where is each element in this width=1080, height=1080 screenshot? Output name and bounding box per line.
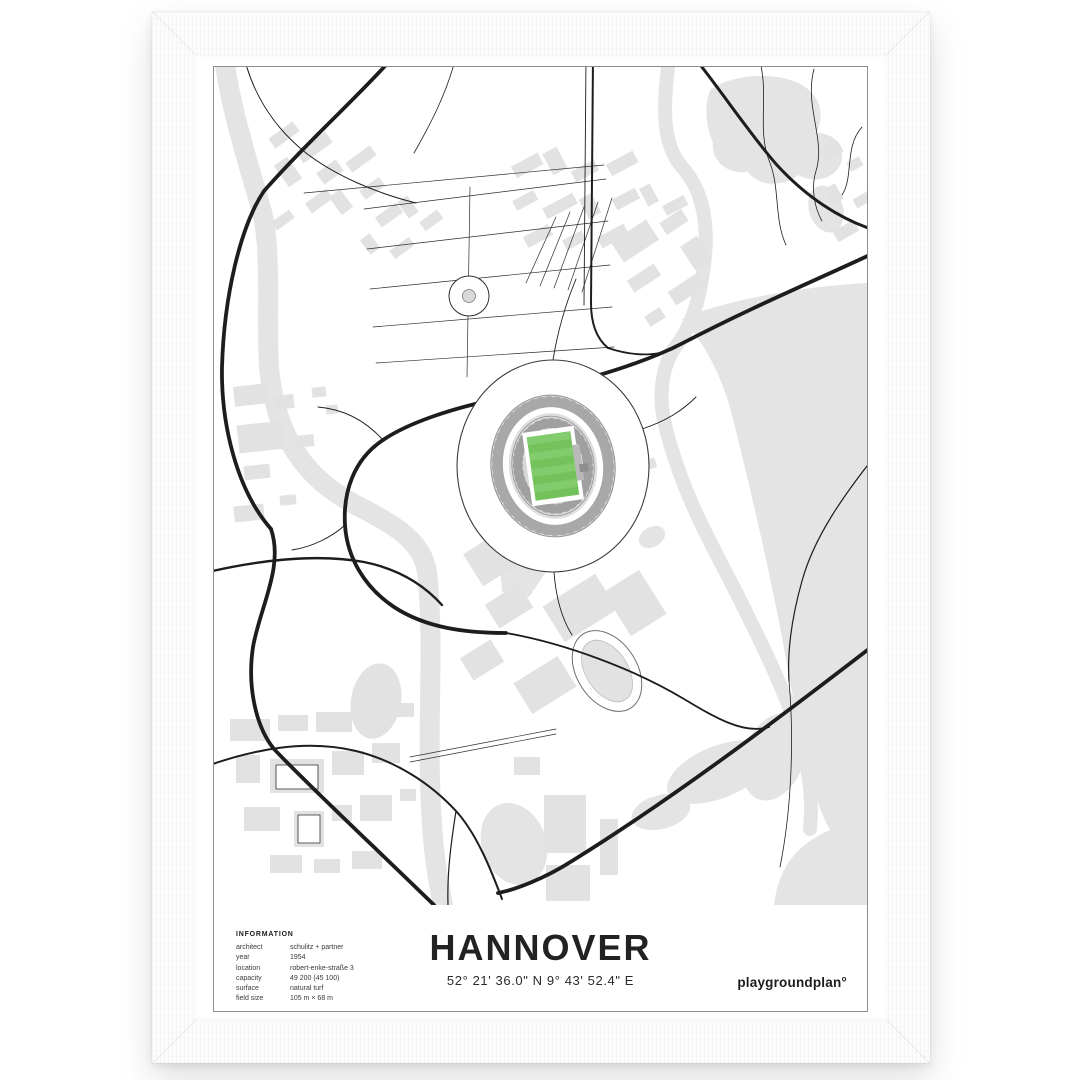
stadium-icon xyxy=(457,360,649,572)
info-row-field-size: field size 105 m × 68 m xyxy=(236,994,354,1004)
brand-logo-text: playgroundplan° xyxy=(737,975,847,990)
frame-miter-joint xyxy=(152,11,196,55)
hannover-stadium-map xyxy=(214,67,867,905)
courtyard-outlines xyxy=(276,765,320,843)
city-title: HANNOVER xyxy=(214,929,867,967)
info-value: 105 m × 68 m xyxy=(290,994,333,1004)
frame-miter-joint xyxy=(152,1020,196,1064)
poster-paper: INFORMATION architect schulitz + partner… xyxy=(195,55,887,1020)
white-wooden-frame: INFORMATION architect schulitz + partner… xyxy=(152,12,930,1063)
roundabout xyxy=(449,276,489,316)
info-label: field size xyxy=(236,994,290,1004)
poster-footer: INFORMATION architect schulitz + partner… xyxy=(214,905,867,1011)
frame-miter-joint xyxy=(886,1020,930,1064)
map-illustration xyxy=(214,67,867,905)
athletic-tracks xyxy=(345,618,656,743)
framed-poster-product-photo: INFORMATION architect schulitz + partner… xyxy=(0,0,1080,1080)
poster-printed-area: INFORMATION architect schulitz + partner… xyxy=(213,66,868,1012)
frame-miter-joint xyxy=(886,11,930,55)
stadium-pitch xyxy=(527,431,579,501)
